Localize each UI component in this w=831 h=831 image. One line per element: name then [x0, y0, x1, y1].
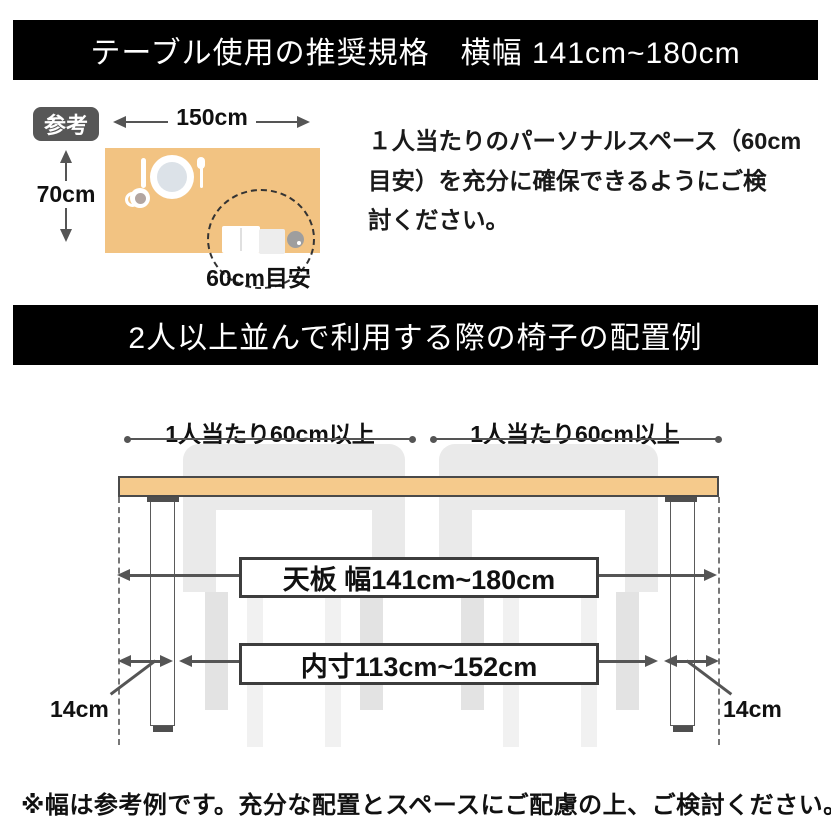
dot — [124, 436, 131, 443]
description-line-3: 討ください。 — [368, 201, 823, 241]
right-edge-guide — [718, 497, 720, 745]
offset-arrow-right-icon — [160, 655, 173, 667]
top-banner: テーブル使用の推奨規格 横幅 141cm~180cm — [13, 20, 818, 80]
description-text: １人当たりのパーソナルスペース（60cm 目安）を充分に確保できるようにご検 討… — [368, 122, 823, 241]
personal-space-label: 60cm目安 — [196, 259, 321, 293]
leg-offset-right-label: 14cm — [723, 696, 782, 723]
dot — [430, 436, 437, 443]
chair2-right-post — [625, 505, 658, 592]
tabletop-arrow-line — [599, 574, 706, 577]
tabletop-dimension-label: 天板 幅141cm~180cm — [283, 558, 555, 597]
dot — [715, 436, 722, 443]
description-line-2: 目安）を充分に確保できるようにご検 — [368, 162, 823, 202]
table-leg-foot — [673, 726, 693, 732]
magnifier-icon — [287, 231, 304, 248]
fork-icon — [200, 160, 204, 188]
left-edge-guide — [118, 497, 120, 745]
table-leg-left — [150, 497, 175, 726]
table-width-label: 150cm — [168, 104, 256, 131]
inner-arrow-line — [190, 660, 239, 663]
inner-dimension-label: 内寸113cm~152cm — [301, 645, 537, 684]
table-depth-label: 70cm — [36, 181, 96, 208]
notebook-icon — [259, 229, 285, 254]
tabletop — [118, 476, 719, 497]
offset-arrow-line — [128, 660, 164, 663]
footnote: ※幅は参考例です。充分な配置とスペースにご配慮の上、ご検討ください。 — [21, 785, 831, 820]
inner-dimension-box: 内寸113cm~152cm — [239, 643, 599, 685]
leg-offset-left-label: 14cm — [50, 696, 109, 723]
knife-icon — [141, 158, 146, 188]
inner-arrow-right-icon — [645, 655, 658, 667]
open-book-icon — [222, 226, 260, 253]
depth-arrow-down-icon — [60, 229, 72, 242]
table-leg-cap — [665, 497, 697, 502]
inner-arrow-line — [599, 660, 647, 663]
width-arrow-right-icon — [297, 116, 310, 128]
table-leg-foot — [153, 726, 173, 732]
offset-arrow-right-icon — [706, 655, 719, 667]
page: テーブル使用の推奨規格 横幅 141cm~180cm 参考 150cm 70cm… — [0, 0, 831, 831]
per-person-left-line — [127, 438, 412, 441]
tabletop-dimension-box: 天板 幅141cm~180cm — [239, 557, 599, 598]
description-line-1: １人当たりのパーソナルスペース（60cm — [368, 122, 823, 162]
width-arrow-left-icon — [113, 116, 126, 128]
middle-banner-title: 2人以上並んで利用する際の椅子の配置例 — [128, 313, 702, 357]
reference-badge-label: 参考 — [44, 108, 88, 140]
chair1-front-leg — [205, 592, 228, 710]
chair2-front-leg — [616, 592, 639, 710]
middle-banner: 2人以上並んで利用する際の椅子の配置例 — [13, 305, 818, 365]
tabletop-arrow-line — [128, 574, 239, 577]
cup-inner — [135, 193, 146, 204]
per-person-right-line — [433, 438, 718, 441]
dot — [409, 436, 416, 443]
table-leg-right — [670, 497, 695, 726]
depth-arrow-up-icon — [60, 150, 72, 163]
chair1-left-post — [183, 505, 216, 592]
table-leg-cap — [147, 497, 179, 502]
tabletop-arrow-right-icon — [704, 569, 717, 581]
top-banner-title: テーブル使用の推奨規格 横幅 141cm~180cm — [90, 28, 740, 72]
reference-badge: 参考 — [33, 107, 99, 141]
plate-inner — [157, 162, 187, 192]
